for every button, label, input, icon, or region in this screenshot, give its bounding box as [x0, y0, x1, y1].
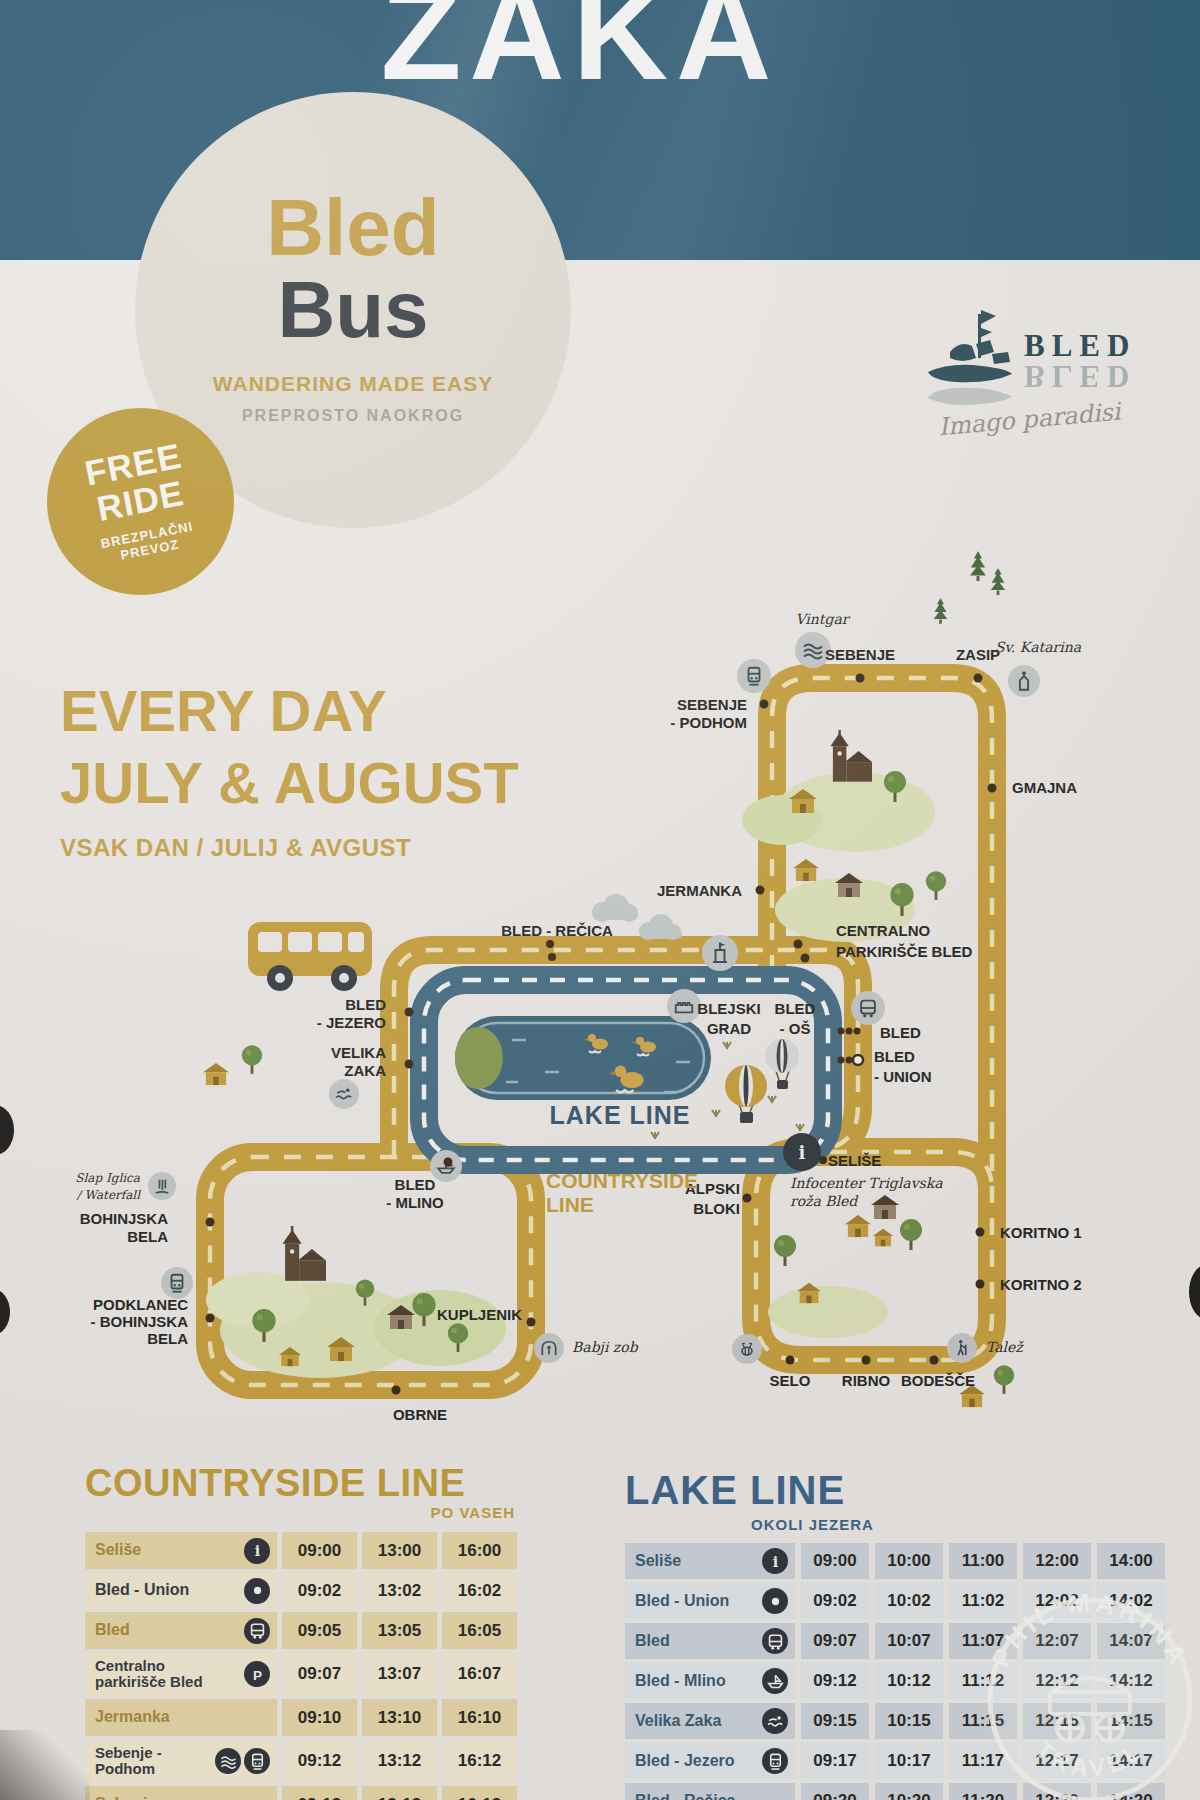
time-cell: 09:07: [801, 1623, 869, 1659]
table-row: Sebenje 09:13 13:13 16:13: [85, 1786, 517, 1800]
stop-name-cell: Bled - Mlino: [625, 1663, 795, 1699]
time-cell: 10:20: [875, 1783, 943, 1800]
time-cell: 16:12: [442, 1739, 517, 1783]
stop-label-podklanec-1: PODKLANEC: [93, 1296, 188, 1313]
time-cell: 16:00: [442, 1532, 517, 1569]
map-label-countryside-1: COUNTRYSIDE: [546, 1169, 698, 1192]
stop-name-cell: Bled - Jezero: [625, 1743, 795, 1779]
stop-label-sebenje: SEBENJE: [825, 646, 895, 663]
stop-label-centralno-2: PARKIRIŠČE BLED: [836, 943, 973, 960]
time-cell: 13:05: [362, 1612, 437, 1649]
stop-label-bled: BLED: [880, 1024, 921, 1041]
photo-corner-shadow: [0, 1730, 90, 1800]
stop-label-velika-zaka-1: VELIKA: [331, 1044, 386, 1061]
label-talez: Talež: [986, 1339, 1024, 1355]
time-cell: 13:12: [362, 1739, 437, 1783]
bus-illustration: [248, 922, 372, 991]
stop-name: Bled - Union: [635, 1593, 729, 1610]
stop-label-bled-recica: BLED - REČICA: [501, 922, 613, 939]
table-row: Sebenje - Podhom 09:12 13:12 16:12: [85, 1739, 517, 1783]
stop-name: Sebenje - Podhom: [95, 1745, 187, 1777]
stop-label-gmajna: GMAJNA: [1012, 779, 1077, 796]
time-cell: 10:17: [875, 1743, 943, 1779]
pine-tree-icon: [933, 597, 949, 624]
hot-air-balloon-icon: [725, 1065, 767, 1123]
time-cell: 09:15: [801, 1703, 869, 1739]
stop-label-koritno1: KORITNO 1: [1000, 1224, 1082, 1241]
time-cell: 10:07: [875, 1623, 943, 1659]
cave-icon: [534, 1333, 564, 1363]
countryside-table-title: COUNTRYSIDE LINE: [85, 1462, 517, 1505]
time-cell: 13:10: [362, 1699, 437, 1736]
hot-air-balloon-icon: [765, 1039, 799, 1089]
route-map: Vintgar SEBENJE ZASIP Sv. Katarina SEBEN…: [0, 0, 1200, 1800]
info-icon: [762, 1548, 788, 1574]
time-cell: 11:00: [949, 1543, 1017, 1579]
time-cell: 13:07: [362, 1652, 437, 1696]
time-cell: 13:02: [362, 1572, 437, 1609]
bled-bus-poster: ZAKA Bled Bus WANDERING MADE EASY PREPRO…: [0, 0, 1200, 1800]
table-row: Jermanka 09:10 13:10 16:10: [85, 1699, 517, 1736]
countryside-timetable: COUNTRYSIDE LINE PO VASEH Seliše 09:00 1…: [85, 1462, 517, 1505]
stop-label-koritno2: KORITNO 2: [1000, 1276, 1082, 1293]
gorge-icon: [215, 1748, 241, 1774]
stop-name-cell: Sebenje - Podhom: [85, 1739, 277, 1783]
waterfall-icon: [148, 1172, 176, 1200]
watermark-stamp: PHIL MARINA TRAVEL: [978, 1588, 1200, 1800]
stop-label-bohinjska-2: BELA: [127, 1228, 168, 1245]
stop-label-bled-os-1: BLED: [775, 1000, 816, 1017]
lake-table-subtitle: OKOLI JEZERA: [751, 1516, 874, 1533]
stop-name: Centralno parkirišče Bled: [95, 1658, 203, 1690]
time-cell: 16:02: [442, 1572, 517, 1609]
stop-label-bled-os-2: - OŠ: [780, 1020, 811, 1037]
stop-label-podklanec-3: BELA: [147, 1330, 188, 1347]
stop-name: Bled: [95, 1622, 130, 1639]
stop-name-cell: Bled: [85, 1612, 277, 1649]
stop-label-centralno-1: CENTRALNO: [836, 922, 930, 939]
time-cell: 09:12: [282, 1739, 357, 1783]
stop-name: Bled - Mlino: [635, 1673, 726, 1690]
stop-label-jermanka: JERMANKA: [657, 882, 742, 899]
stop-name-cell: Bled: [625, 1623, 795, 1659]
pine-tree-icon: [990, 567, 1006, 595]
time-cell: 13:00: [362, 1532, 437, 1569]
stop-label-obrne: OBRNE: [393, 1406, 447, 1423]
train-icon: [244, 1748, 270, 1774]
stop-label-sv-katarina: Sv. Katarina: [995, 639, 1082, 655]
poi-icons: [148, 632, 1040, 1364]
time-cell: 12:00: [1023, 1543, 1091, 1579]
cloud-icon: [639, 914, 682, 940]
bus-icon: [244, 1618, 270, 1644]
time-cell: 10:12: [875, 1663, 943, 1699]
boat-icon: [762, 1668, 788, 1694]
time-cell: 10:00: [875, 1543, 943, 1579]
time-cell: 09:05: [282, 1612, 357, 1649]
info-icon: [244, 1538, 270, 1564]
stop-name: Bled: [635, 1633, 670, 1650]
time-cell: 09:07: [282, 1652, 357, 1696]
map-label-lake-line: LAKE LINE: [550, 1101, 691, 1129]
stop-label-blejski-grad-2: GRAD: [707, 1020, 751, 1037]
countryside-table-subtitle: PO VASEH: [431, 1504, 515, 1521]
church-icon: [1008, 665, 1040, 697]
stop-label-velika-zaka-2: ZAKA: [344, 1062, 386, 1079]
bus-stop-icon: [851, 991, 885, 1025]
stop-label-bled-jezero-1: BLED: [345, 996, 386, 1013]
tree-icon: [242, 1045, 262, 1074]
stop-name: Bled - Rečica: [635, 1793, 735, 1800]
stop-label-bled-mlino-2: - MLINO: [386, 1194, 444, 1211]
lake-illustration: [453, 1016, 711, 1100]
time-cell: 16:05: [442, 1612, 517, 1649]
bus-icon: [762, 1628, 788, 1654]
time-cell: 16:07: [442, 1652, 517, 1696]
stop-name-cell: Bled - Union: [85, 1572, 277, 1609]
castle-wall-icon: [667, 989, 701, 1023]
time-cell: 13:13: [362, 1786, 437, 1800]
stop-label-selise: SELIŠE: [828, 1152, 881, 1169]
train-icon: [161, 1267, 193, 1299]
swimmer-icon: [762, 1708, 788, 1734]
time-cell: 09:02: [801, 1583, 869, 1619]
table-row: Centralno parkirišče Bled 09:07 13:07 16…: [85, 1652, 517, 1696]
time-cell: 09:13: [282, 1786, 357, 1800]
bee-icon: [732, 1334, 762, 1364]
time-cell: 09:10: [282, 1699, 357, 1736]
stop-label-sebenje-podhom-1: SEBENJE: [677, 696, 747, 713]
stop-name: Seliše: [95, 1542, 141, 1559]
time-cell: 09:02: [282, 1572, 357, 1609]
stop-label-bodesce: BODEŠČE: [901, 1372, 975, 1389]
cloud-icon: [592, 894, 638, 922]
stop-name: Bled - Jezero: [635, 1753, 735, 1770]
stop-label-kupljenik: KUPLJENIK: [437, 1306, 522, 1323]
stop-label-vintgar: Vintgar: [796, 611, 851, 628]
table-row: Seliše 09:00 13:00 16:00: [85, 1532, 517, 1569]
stop-label-podklanec-2: - BOHINJSKA: [90, 1313, 188, 1330]
stop-name: Jermanka: [95, 1709, 170, 1726]
train-icon: [737, 659, 771, 693]
pine-tree-icon: [969, 550, 987, 581]
table-row: Bled - Union 09:02 13:02 16:02: [85, 1572, 517, 1609]
stop-label-bled-union-2: - UNION: [874, 1068, 932, 1085]
stop-name-cell: Velika Zaka: [625, 1703, 795, 1739]
label-babji-zob: Babji zob: [572, 1339, 639, 1356]
stop-label-blejski-grad-1: BLEJSKI: [697, 1000, 760, 1017]
stop-name: Sebenje: [95, 1796, 156, 1800]
parking-icon: [244, 1661, 270, 1687]
target-icon: [762, 1588, 788, 1614]
train-icon: [762, 1748, 788, 1774]
stop-name-cell: Centralno parkirišče Bled: [85, 1652, 277, 1696]
label-infocenter-2: roža Bled: [790, 1193, 859, 1209]
stop-label-ribno: RIBNO: [842, 1372, 891, 1389]
stop-name: Velika Zaka: [635, 1713, 721, 1730]
time-cell: 16:13: [442, 1786, 517, 1800]
lake-table-title: LAKE LINE: [625, 1468, 1170, 1513]
table-row: Seliše 09:00 10:00 11:00 12:00 14:00: [625, 1543, 1165, 1579]
stop-name-cell: Bled - Union: [625, 1583, 795, 1619]
time-cell: 09:00: [282, 1532, 357, 1569]
village-scene-west: [206, 1226, 506, 1378]
stop-label-sebenje-podhom-2: - PODHOM: [670, 714, 747, 731]
hiker-icon: [947, 1333, 977, 1363]
stop-label-selo: SELO: [770, 1372, 811, 1389]
infocenter-icon: [783, 1133, 821, 1171]
table-row: Bled 09:05 13:05 16:05: [85, 1612, 517, 1649]
time-cell: 14:00: [1097, 1543, 1165, 1579]
stop-name: Seliše: [635, 1553, 681, 1570]
label-slap-iglica-2: / Waterfall: [76, 1188, 141, 1202]
house-icon: [203, 1063, 229, 1085]
time-cell: 09:20: [801, 1783, 869, 1800]
stop-name-cell: Bled - Rečica: [625, 1783, 795, 1800]
label-slap-iglica-1: Slap Iglica: [75, 1171, 141, 1185]
target-icon: [244, 1578, 270, 1604]
stop-label-zasip: ZASIP: [956, 646, 1000, 663]
time-cell: 09:12: [801, 1663, 869, 1699]
map-label-countryside-2: LINE: [546, 1193, 594, 1216]
stop-label-bled-jezero-2: - JEZERO: [317, 1014, 387, 1031]
time-cell: 09:17: [801, 1743, 869, 1779]
stop-label-bled-union-1: BLED: [874, 1048, 915, 1065]
time-cell: 16:10: [442, 1699, 517, 1736]
stop-name-cell: Seliše: [85, 1532, 277, 1569]
lake-timetable: LAKE LINE OKOLI JEZERA Seliše 09:00 10:0…: [625, 1468, 1170, 1513]
label-infocenter-1: Infocenter Triglavska: [790, 1175, 943, 1192]
stop-name-cell: Sebenje: [85, 1786, 277, 1800]
stop-name-cell: Seliše: [625, 1543, 795, 1579]
time-cell: 10:02: [875, 1583, 943, 1619]
stop-label-bled-mlino-1: BLED: [395, 1176, 436, 1193]
stop-label-alpski-2: BLOKI: [693, 1200, 740, 1217]
stop-name-cell: Jermanka: [85, 1699, 277, 1736]
time-cell: 09:00: [801, 1543, 869, 1579]
stop-label-bohinjska-1: BOHINJSKA: [80, 1210, 169, 1227]
time-cell: 10:15: [875, 1703, 943, 1739]
castle-icon: [702, 935, 738, 971]
stop-name: Bled - Union: [95, 1582, 189, 1599]
swimmer-icon: [329, 1079, 359, 1109]
